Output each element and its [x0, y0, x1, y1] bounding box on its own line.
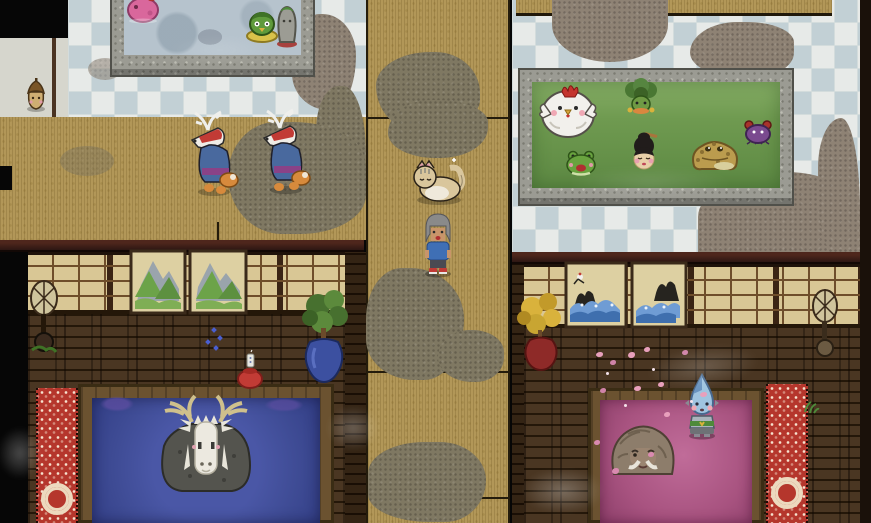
- deer-spirit[interactable]: [150, 392, 262, 498]
- pink-spirit[interactable]: [126, 0, 160, 24]
- grass-sprig: [802, 400, 820, 414]
- steam-wisp: [150, 30, 290, 70]
- doorway-notch: [0, 166, 12, 190]
- steam-wisp: [540, 160, 760, 206]
- grime-patch: [438, 330, 504, 382]
- steam-wisp: [318, 398, 388, 458]
- fox-spirit-a[interactable]: [188, 110, 238, 196]
- potted-tree[interactable]: [298, 284, 350, 386]
- mountain-painting-left: [131, 251, 185, 313]
- void-top-left: [0, 0, 66, 38]
- player[interactable]: [422, 212, 454, 278]
- screen-edge-band: [860, 0, 871, 523]
- paper-lamp-left[interactable]: [28, 276, 60, 356]
- steam-wisp: [508, 460, 618, 522]
- blue-sparkles: [204, 326, 228, 354]
- sake-jar[interactable]: [236, 352, 264, 390]
- grime-patch: [388, 100, 488, 158]
- game-viewport: [0, 0, 871, 523]
- crab-spirit[interactable]: [744, 118, 772, 144]
- leaf-spirit[interactable]: [622, 80, 660, 114]
- mat-seam: [217, 222, 219, 240]
- cat[interactable]: [412, 158, 466, 206]
- chicken-spirit[interactable]: [538, 78, 598, 140]
- golden-tree[interactable]: [516, 288, 568, 372]
- grime-patch: [60, 146, 114, 176]
- steam-wisp: [0, 418, 50, 488]
- seed-spirit[interactable]: [24, 78, 48, 112]
- entry-strip-divider: [52, 38, 56, 117]
- paper-lamp-right[interactable]: [810, 286, 840, 360]
- mountain-painting-right: [190, 251, 246, 313]
- wave-painting-right: [632, 263, 686, 327]
- fox-spirit-b[interactable]: [260, 108, 310, 194]
- wave-painting-left: [566, 263, 626, 327]
